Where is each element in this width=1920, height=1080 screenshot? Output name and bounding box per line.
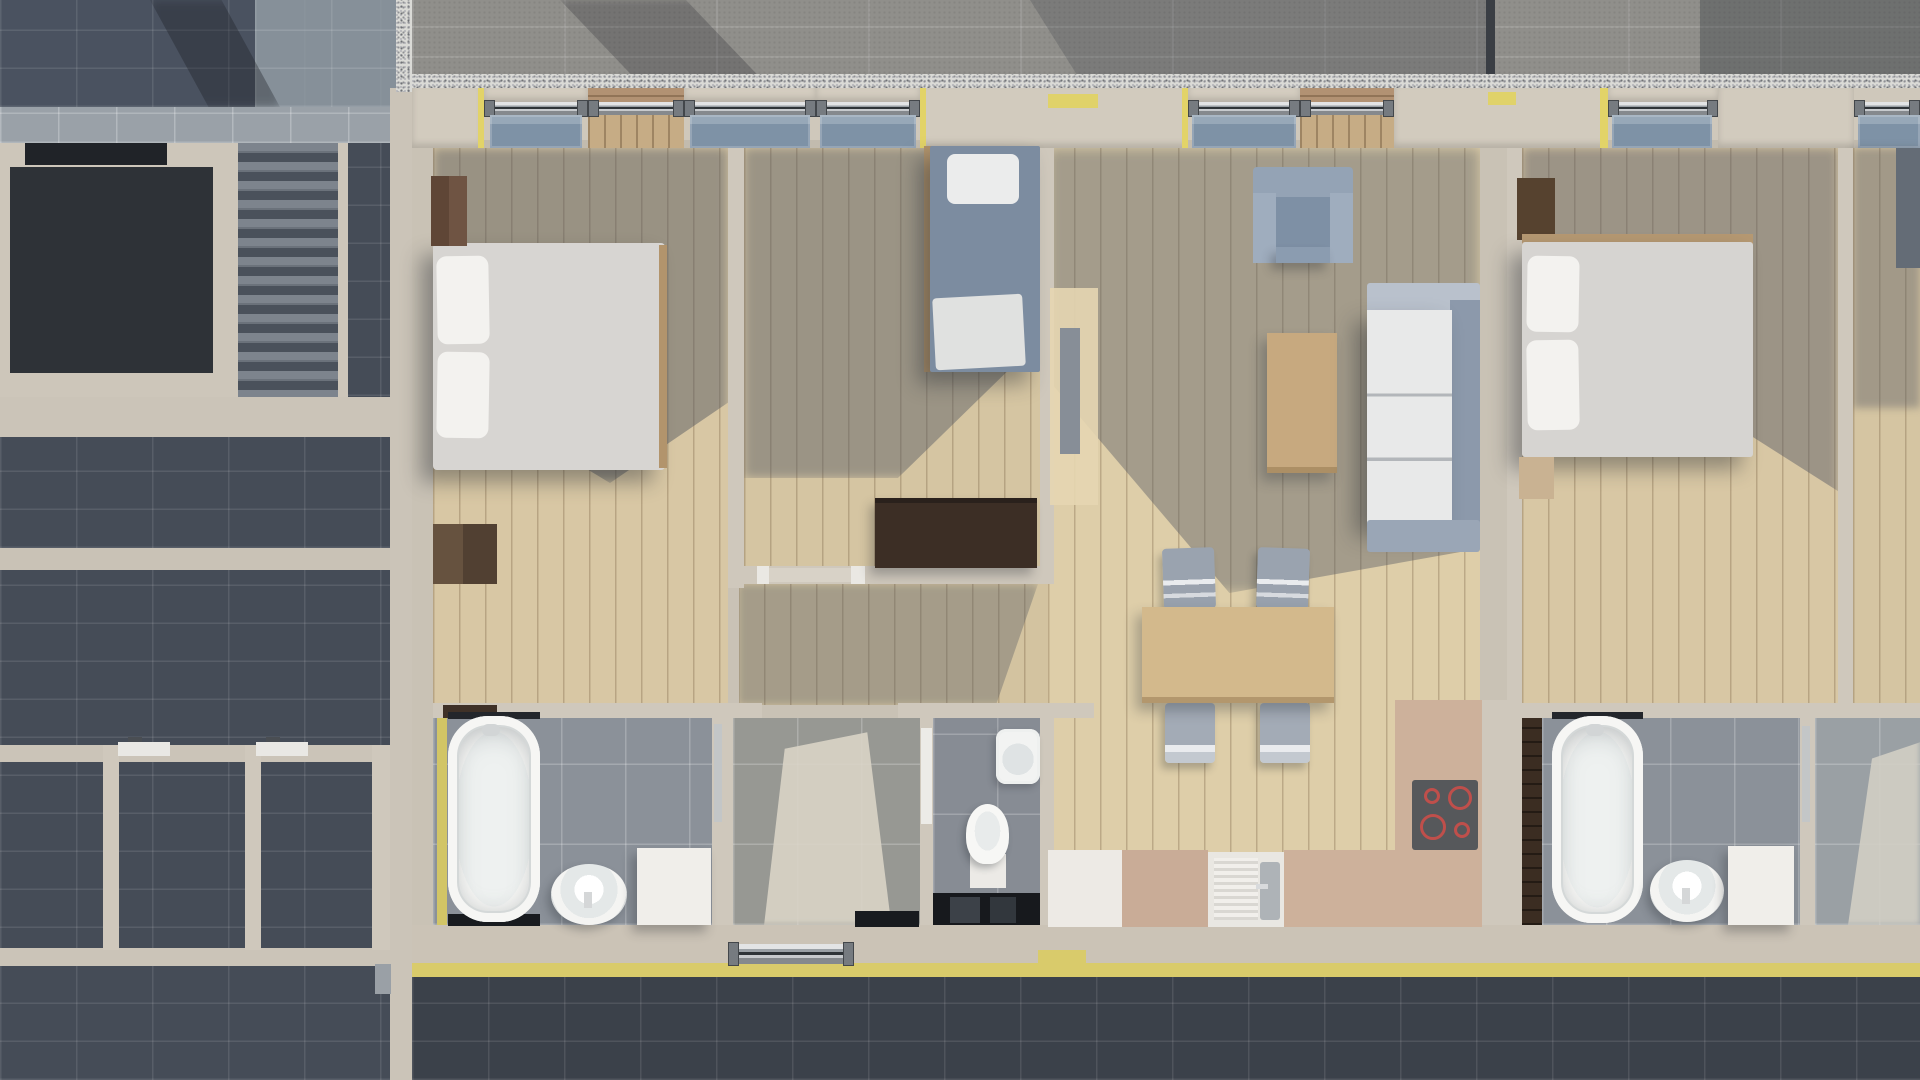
bedroom3-dresser bbox=[1519, 457, 1554, 499]
dark-wood-niche bbox=[1522, 715, 1542, 925]
wc-niche-block-2 bbox=[990, 897, 1016, 923]
terrace-sliding-door-track bbox=[728, 944, 854, 964]
door-handle-1 bbox=[128, 737, 142, 742]
armchair-front-edge bbox=[1276, 247, 1330, 263]
window-3-glass bbox=[820, 115, 916, 148]
bathroom1-bathtub bbox=[448, 716, 540, 922]
core-wall-band-3 bbox=[0, 745, 390, 762]
bathroom3-cabinet bbox=[1728, 846, 1794, 925]
bedroom2-door-leaf bbox=[769, 568, 851, 582]
balcony-door-1 bbox=[118, 742, 170, 756]
south-insulation-step bbox=[1038, 950, 1086, 964]
burner-large-ne bbox=[1448, 786, 1472, 810]
balcony-divider-wall-1 bbox=[103, 745, 119, 950]
bathroom1-pipe bbox=[714, 724, 722, 822]
bedroom1-pillow-bottom bbox=[436, 352, 489, 439]
core-wall-band-2 bbox=[0, 548, 390, 570]
window-4-track bbox=[1188, 102, 1300, 115]
window-4-glass bbox=[1192, 115, 1296, 148]
balcony-door-2 bbox=[256, 742, 308, 756]
window-1-glass bbox=[490, 115, 582, 148]
window-3-lintel bbox=[816, 88, 920, 102]
dining-chair-ne bbox=[1256, 547, 1310, 610]
armchair-arm-left bbox=[1253, 193, 1276, 263]
balcony-2-track bbox=[1300, 102, 1394, 115]
bedroom2-door-jamb-right bbox=[851, 566, 865, 584]
wall-bedroom3-east bbox=[1838, 148, 1853, 705]
staircase-steps bbox=[238, 143, 338, 397]
bathroom1-tub-faucet bbox=[482, 724, 500, 736]
window-6-glass bbox=[1858, 115, 1920, 148]
floor-plan-render bbox=[0, 0, 1920, 1080]
south-wall bbox=[412, 925, 1920, 967]
bathroom3-tub-faucet bbox=[1586, 724, 1604, 736]
window-2-lintel bbox=[684, 88, 816, 102]
bathroom3-bathtub bbox=[1552, 716, 1643, 923]
bedroom1-pillow-top bbox=[436, 256, 490, 345]
balcony-2-door bbox=[1300, 115, 1394, 148]
armchair-arm-right bbox=[1330, 193, 1353, 263]
kitchen-sink-basin bbox=[1260, 862, 1280, 920]
bedroom2-blanket bbox=[932, 294, 1026, 371]
bedroom2-pillow bbox=[947, 154, 1019, 204]
bedroom1-wardrobe-face bbox=[433, 524, 463, 584]
wall-kitchen-right bbox=[1482, 700, 1522, 925]
window-3-track bbox=[816, 102, 920, 115]
wall-bedroom1-bedroom2 bbox=[728, 148, 744, 588]
wc-door bbox=[921, 728, 932, 824]
armchair-seat bbox=[1276, 197, 1330, 251]
bedroom3-pillow-bottom bbox=[1526, 340, 1580, 431]
window-5-track bbox=[1608, 102, 1718, 115]
bedroom3-pillow-top bbox=[1526, 256, 1579, 333]
burner-large-sw bbox=[1420, 814, 1446, 840]
facade-pier-4 bbox=[1718, 88, 1854, 148]
window-1-track bbox=[484, 102, 588, 115]
insulation-patch-2 bbox=[1488, 92, 1516, 105]
window-1-lintel bbox=[484, 88, 588, 102]
west-fitting bbox=[375, 964, 391, 994]
sofa-back-cushions bbox=[1450, 300, 1480, 532]
balcony-1-door bbox=[588, 115, 684, 148]
bathroom3-pipe bbox=[1802, 726, 1810, 822]
balcony-divider-wall-2 bbox=[245, 745, 261, 950]
bedroom2-desk bbox=[875, 498, 1037, 568]
corridor-shadow bbox=[738, 584, 1038, 705]
insulation-patch-1 bbox=[1048, 94, 1098, 108]
bedroom2-door-jamb-left bbox=[757, 566, 769, 584]
window-2-track bbox=[684, 102, 816, 115]
kitchen-counter-a bbox=[1122, 850, 1208, 927]
coffee-table bbox=[1267, 333, 1337, 473]
adjacent-room-furniture bbox=[1896, 148, 1920, 268]
bedroom1-bed-footboard bbox=[659, 245, 667, 468]
south-terrace-tiles bbox=[412, 977, 1920, 1080]
window-6-track bbox=[1854, 102, 1920, 115]
sofa-seat-cushions bbox=[1367, 310, 1452, 524]
window-5-glass bbox=[1612, 115, 1712, 148]
facade-pier-west bbox=[412, 88, 482, 148]
burner-small-nw bbox=[1424, 788, 1440, 804]
insulation-strip-2 bbox=[920, 88, 926, 148]
window-2-glass bbox=[690, 115, 810, 148]
stair-stringer-left bbox=[228, 143, 238, 397]
bathroom3-sink-faucet bbox=[1682, 888, 1690, 904]
kitchen-cabinet-white bbox=[1048, 850, 1122, 927]
window-4-lintel bbox=[1188, 88, 1300, 102]
kitchen-counter-corner bbox=[1284, 850, 1482, 927]
window-5-lintel bbox=[1608, 88, 1718, 102]
door-handle-2 bbox=[266, 737, 280, 742]
wall-bathrooms-north-right bbox=[1480, 703, 1920, 718]
insulation-strip-4 bbox=[1600, 88, 1608, 148]
core-wall-band-4 bbox=[0, 948, 390, 966]
wc-window-slit bbox=[855, 911, 919, 927]
wc-toilet-bowl bbox=[966, 804, 1009, 864]
sofa-armrest-bottom bbox=[1367, 520, 1480, 552]
balcony-divider-wall-3 bbox=[372, 745, 390, 950]
wall-bedroom1-bedroom2-low bbox=[730, 588, 739, 705]
stair-stringer-right bbox=[338, 143, 348, 397]
bedroom3-wardrobe bbox=[1517, 178, 1555, 240]
south-insulation-strip bbox=[412, 963, 1920, 977]
bathroom1-cabinet bbox=[637, 848, 711, 925]
elevator-door-slot bbox=[25, 143, 167, 165]
wc-sink bbox=[996, 729, 1040, 784]
burner-small-se bbox=[1454, 822, 1470, 838]
bedroom2-desk-edge bbox=[875, 498, 1037, 503]
dining-table bbox=[1142, 607, 1334, 703]
dining-chair-sw bbox=[1165, 703, 1215, 763]
bathroom1-sink-faucet bbox=[584, 892, 592, 908]
kitchen-sink-drainboard bbox=[1214, 858, 1258, 920]
bedroom1-cabinet-face bbox=[449, 176, 467, 246]
kitchen-sink-faucet bbox=[1256, 884, 1268, 889]
stair-core-tile-row bbox=[0, 107, 412, 143]
elevator-shaft bbox=[10, 167, 213, 373]
core-wall-band-1 bbox=[0, 397, 390, 437]
dining-chair-nw bbox=[1162, 547, 1216, 610]
living-door-leaf bbox=[1060, 328, 1080, 454]
bathroom1-insulation-strip bbox=[437, 718, 447, 925]
stair-core-roof-light-patch bbox=[255, 0, 412, 107]
wc-niche-block-1 bbox=[950, 897, 980, 923]
dining-chair-se bbox=[1260, 703, 1310, 763]
balcony-1-track bbox=[588, 102, 684, 115]
